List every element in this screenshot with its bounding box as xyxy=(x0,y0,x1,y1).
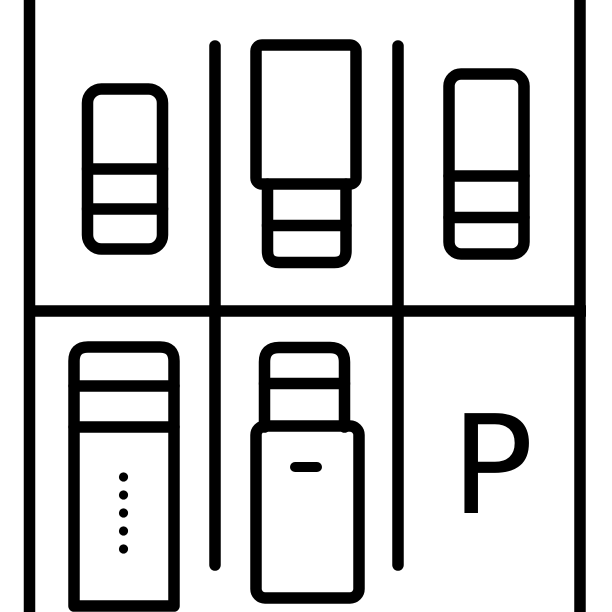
roof-dot-2 xyxy=(119,490,128,499)
roof-dot-4 xyxy=(119,526,128,535)
roof-dot-1 xyxy=(119,472,128,481)
parking-lot-icon: P xyxy=(0,0,612,612)
parking-sign-letter: P xyxy=(451,387,534,546)
parking-lot-icon-svg: P xyxy=(0,0,612,612)
roof-dot-3 xyxy=(119,508,128,517)
roof-dot-5 xyxy=(119,544,128,553)
